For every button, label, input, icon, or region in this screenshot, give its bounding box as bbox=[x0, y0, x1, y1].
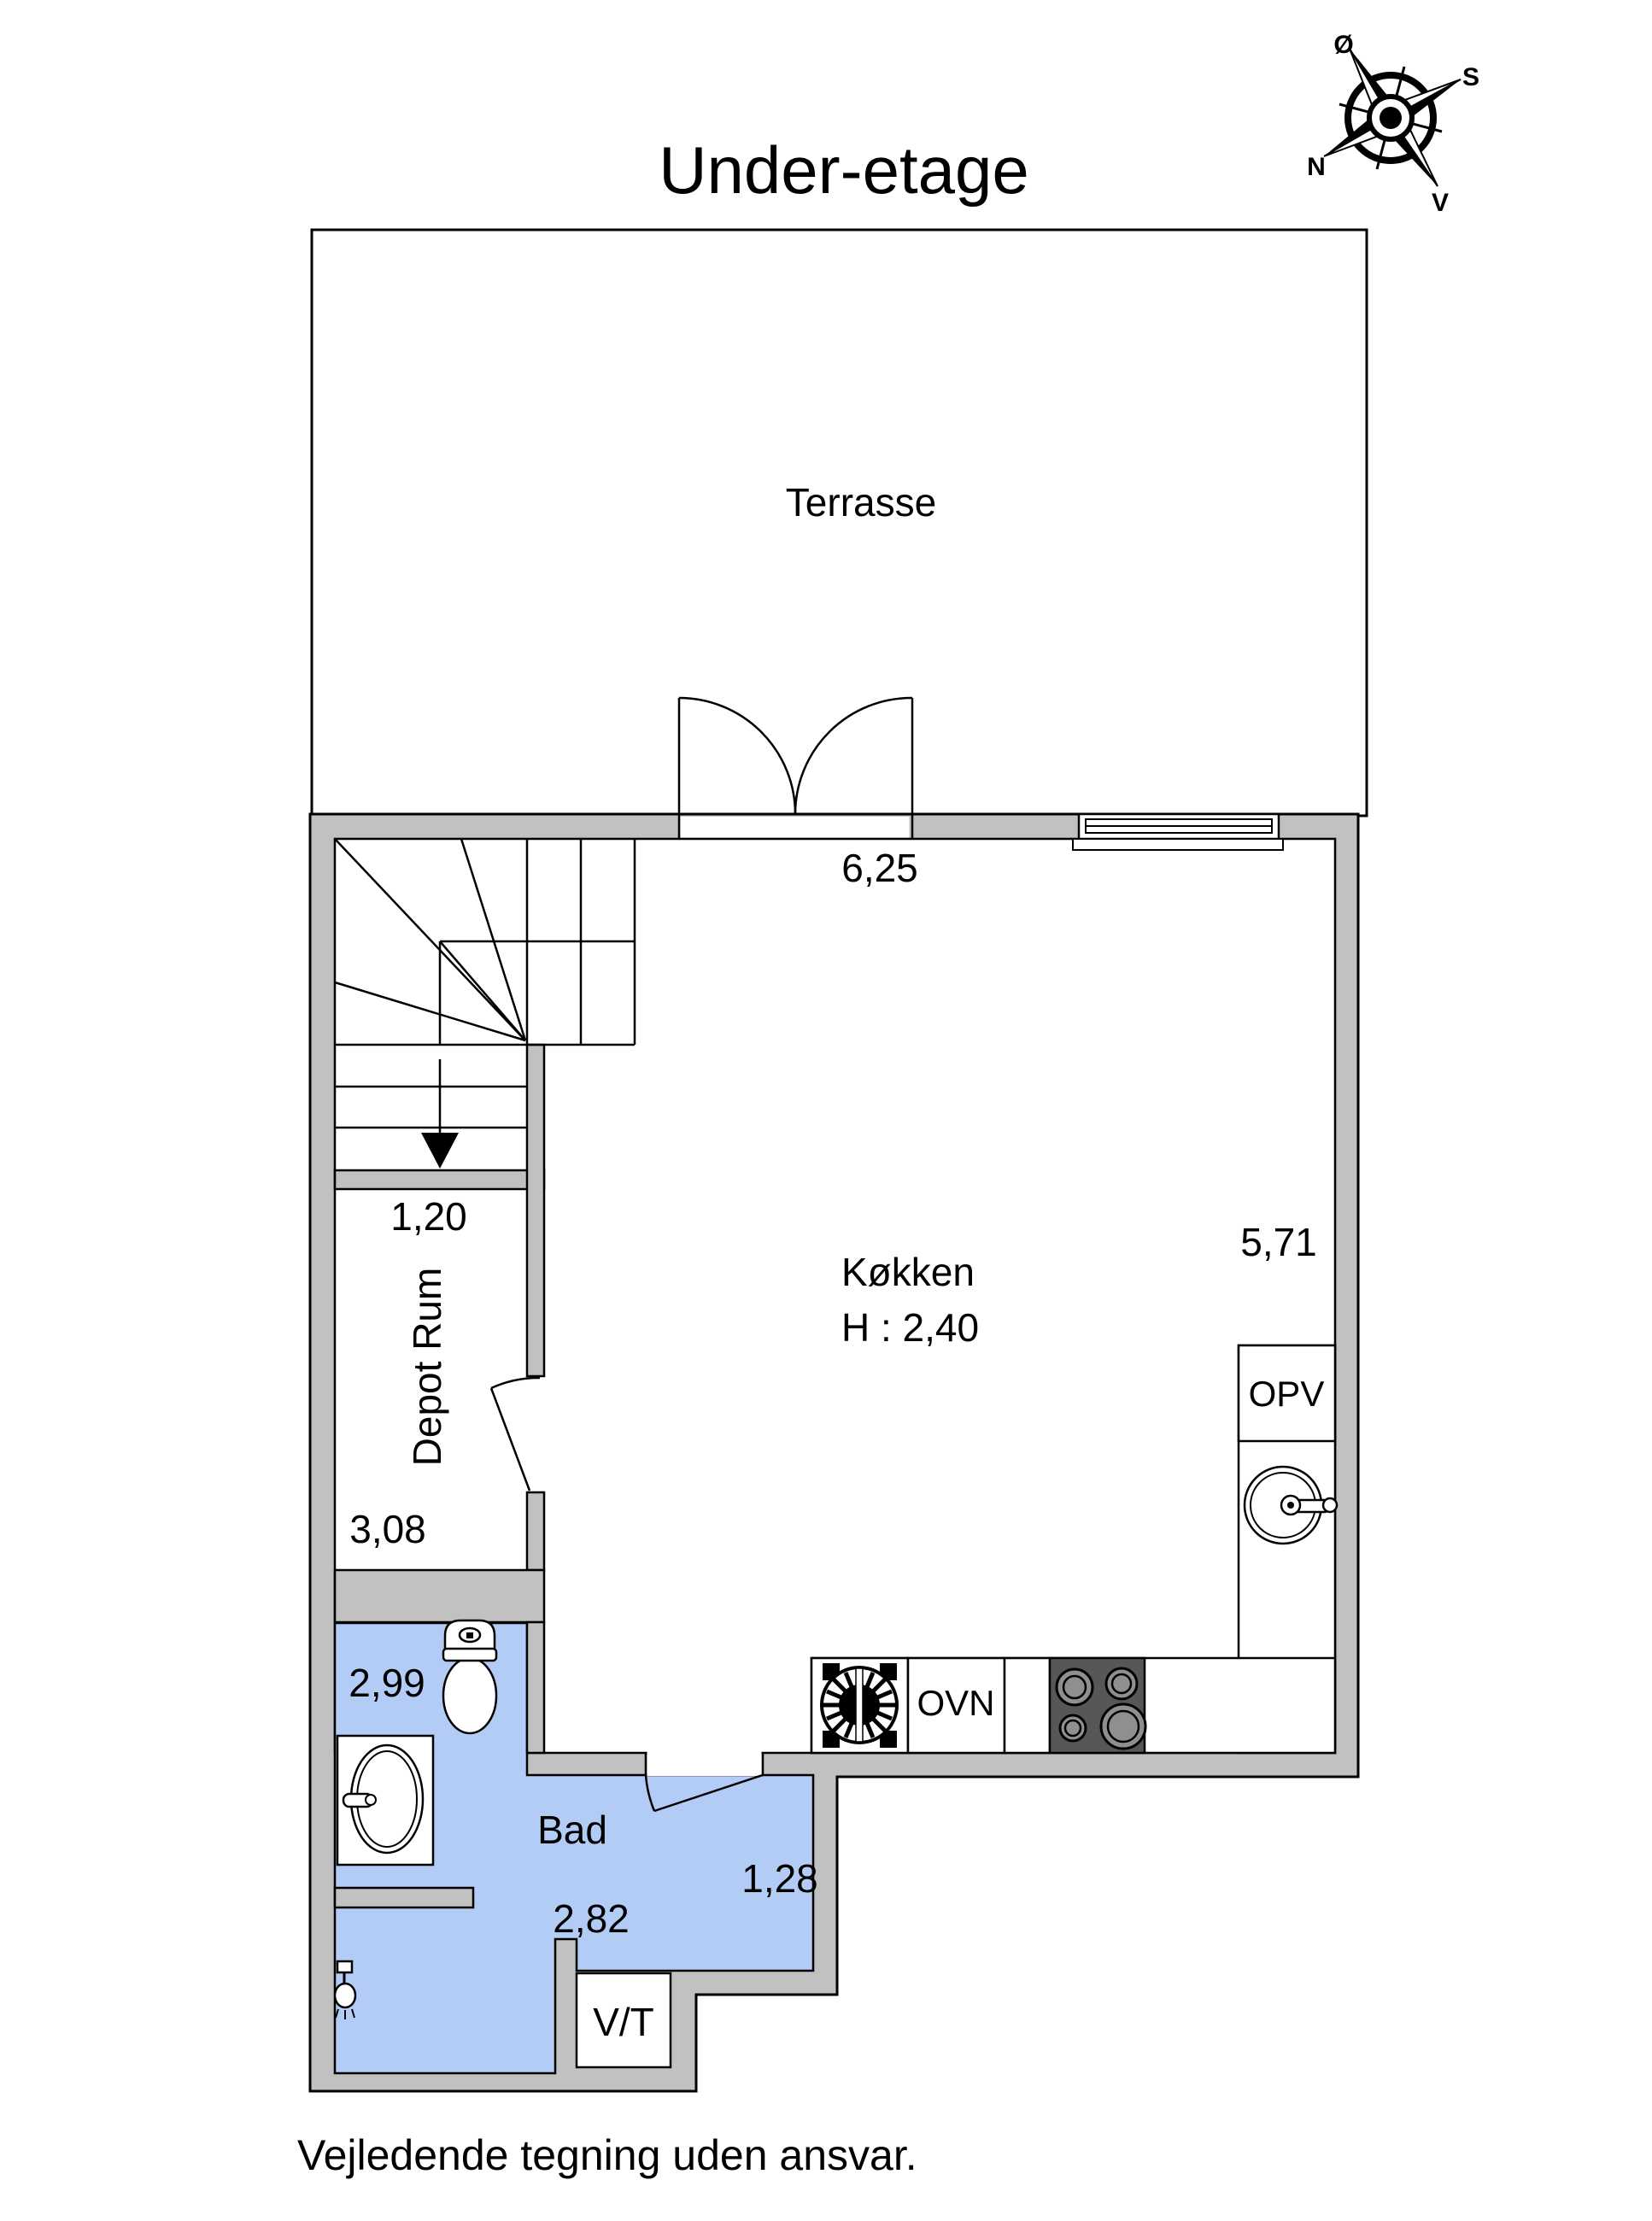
wall-kitchen-bath bbox=[527, 1622, 544, 1753]
compass-rose: Ø S N V bbox=[1307, 31, 1479, 217]
oven-label: OVN bbox=[917, 1683, 994, 1723]
bath-top-width-dim: 2,99 bbox=[349, 1661, 425, 1705]
compass-west-label: V bbox=[1432, 189, 1449, 217]
compass-hub bbox=[1380, 107, 1402, 129]
bath-door-opening bbox=[647, 1750, 762, 1776]
bath-right-depth-dim: 1,28 bbox=[741, 1856, 818, 1901]
depot-depth-dim: 3,08 bbox=[349, 1507, 426, 1551]
extractor-fan-icon bbox=[822, 1663, 897, 1748]
wall-bath-stub bbox=[335, 1888, 473, 1907]
wall-depot-bottom bbox=[335, 1570, 544, 1622]
terrace-door-opening bbox=[681, 817, 910, 838]
toilet-tank-lip bbox=[443, 1649, 496, 1661]
wall-stair-side-lower bbox=[527, 1492, 544, 1570]
kitchen-depth-dim: 5,71 bbox=[1240, 1220, 1317, 1264]
kitchen-ceiling-height: H : 2,40 bbox=[841, 1305, 979, 1350]
shower-fixture bbox=[335, 1961, 355, 2019]
bath-sink bbox=[337, 1736, 433, 1865]
bath-faucet-knob bbox=[366, 1795, 376, 1805]
compass-east-label: Ø bbox=[1333, 31, 1353, 59]
bath-label: Bad bbox=[537, 1808, 607, 1852]
compass-north-label: N bbox=[1307, 153, 1326, 181]
depot-label: Depot Rum bbox=[405, 1268, 449, 1467]
kitchen-faucet-knob bbox=[1323, 1498, 1337, 1512]
counter-gap-box bbox=[1005, 1658, 1050, 1753]
terrasse-label: Terrasse bbox=[786, 480, 936, 524]
toilet-button-dot bbox=[466, 1632, 473, 1638]
kitchen-width-dim: 6,25 bbox=[841, 846, 918, 890]
floor-plan-page: Under-etage Ø S N V Terrasse bbox=[0, 0, 1652, 2221]
wall-stair-side-upper bbox=[527, 1045, 544, 1376]
bath-width-dim: 2,82 bbox=[553, 1896, 630, 1941]
disclaimer-text: Vejledende tegning uden ansvar. bbox=[297, 2131, 917, 2179]
kitchen-faucet-dot bbox=[1287, 1502, 1294, 1509]
toilet-bowl bbox=[443, 1658, 496, 1733]
floor-plan-drawing: Under-etage Ø S N V Terrasse bbox=[0, 0, 1652, 2221]
utility-label: V/T bbox=[593, 2000, 654, 2044]
page-title: Under-etage bbox=[659, 132, 1029, 208]
compass-south-label: S bbox=[1462, 63, 1479, 91]
window-sill bbox=[1073, 839, 1283, 850]
kitchen-window bbox=[1073, 814, 1283, 850]
toilet bbox=[443, 1620, 496, 1733]
wall-depot-top bbox=[335, 1170, 544, 1189]
dishwasher-label: OPV bbox=[1249, 1374, 1325, 1414]
kitchen-label: Køkken bbox=[841, 1250, 975, 1294]
depot-width-dim: 1,20 bbox=[390, 1194, 467, 1239]
